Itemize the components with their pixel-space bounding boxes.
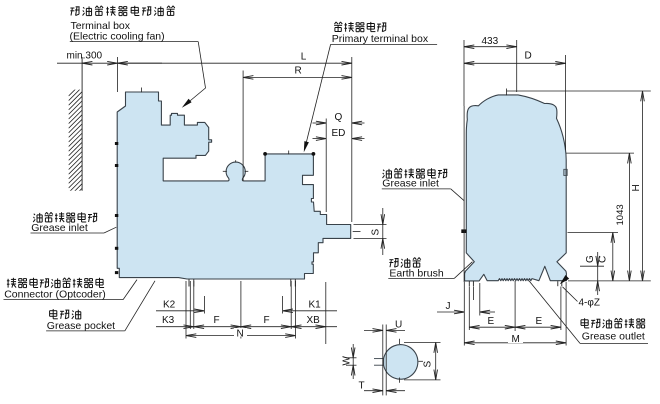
svg-text:H: H [631, 184, 642, 191]
svg-text:ED: ED [332, 128, 346, 139]
svg-text:S: S [423, 361, 434, 368]
svg-text:min.300: min.300 [67, 51, 103, 62]
svg-text:J: J [446, 301, 451, 312]
svg-text:M: M [512, 334, 520, 345]
svg-text:Grease inlet: Grease inlet [382, 178, 439, 190]
svg-text:Grease outlet: Grease outlet [582, 330, 645, 342]
svg-text:Grease pocket: Grease pocket [47, 320, 115, 332]
svg-text:Grease inlet: Grease inlet [31, 222, 88, 234]
svg-text:1043: 1043 [615, 204, 626, 225]
svg-text:Connector (Optcoder): Connector (Optcoder) [4, 289, 106, 301]
svg-text:D: D [525, 50, 532, 61]
svg-text:U: U [395, 320, 402, 331]
svg-text:Earth brush: Earth brush [389, 267, 443, 279]
svg-text:F: F [214, 315, 220, 326]
svg-text:K3: K3 [162, 315, 175, 326]
svg-text:XB: XB [307, 315, 321, 326]
svg-text:L: L [301, 52, 307, 63]
svg-text:T: T [359, 380, 365, 391]
svg-text:R: R [295, 66, 302, 77]
svg-text:K2: K2 [163, 300, 176, 311]
svg-text:Primary terminal box: Primary terminal box [332, 33, 429, 45]
svg-text:N: N [237, 328, 244, 339]
svg-text:433: 433 [482, 36, 499, 47]
svg-text:4-φZ: 4-φZ [579, 298, 600, 309]
svg-text:Q: Q [335, 112, 343, 123]
svg-text:G: G [585, 255, 596, 263]
svg-text:E: E [536, 316, 543, 327]
svg-text:K1: K1 [309, 300, 322, 311]
svg-text:S: S [371, 229, 382, 236]
svg-text:E: E [488, 316, 495, 327]
svg-text:F: F [264, 315, 270, 326]
svg-text:(Electric cooling fan): (Electric cooling fan) [70, 30, 165, 42]
svg-text:W: W [342, 356, 353, 366]
